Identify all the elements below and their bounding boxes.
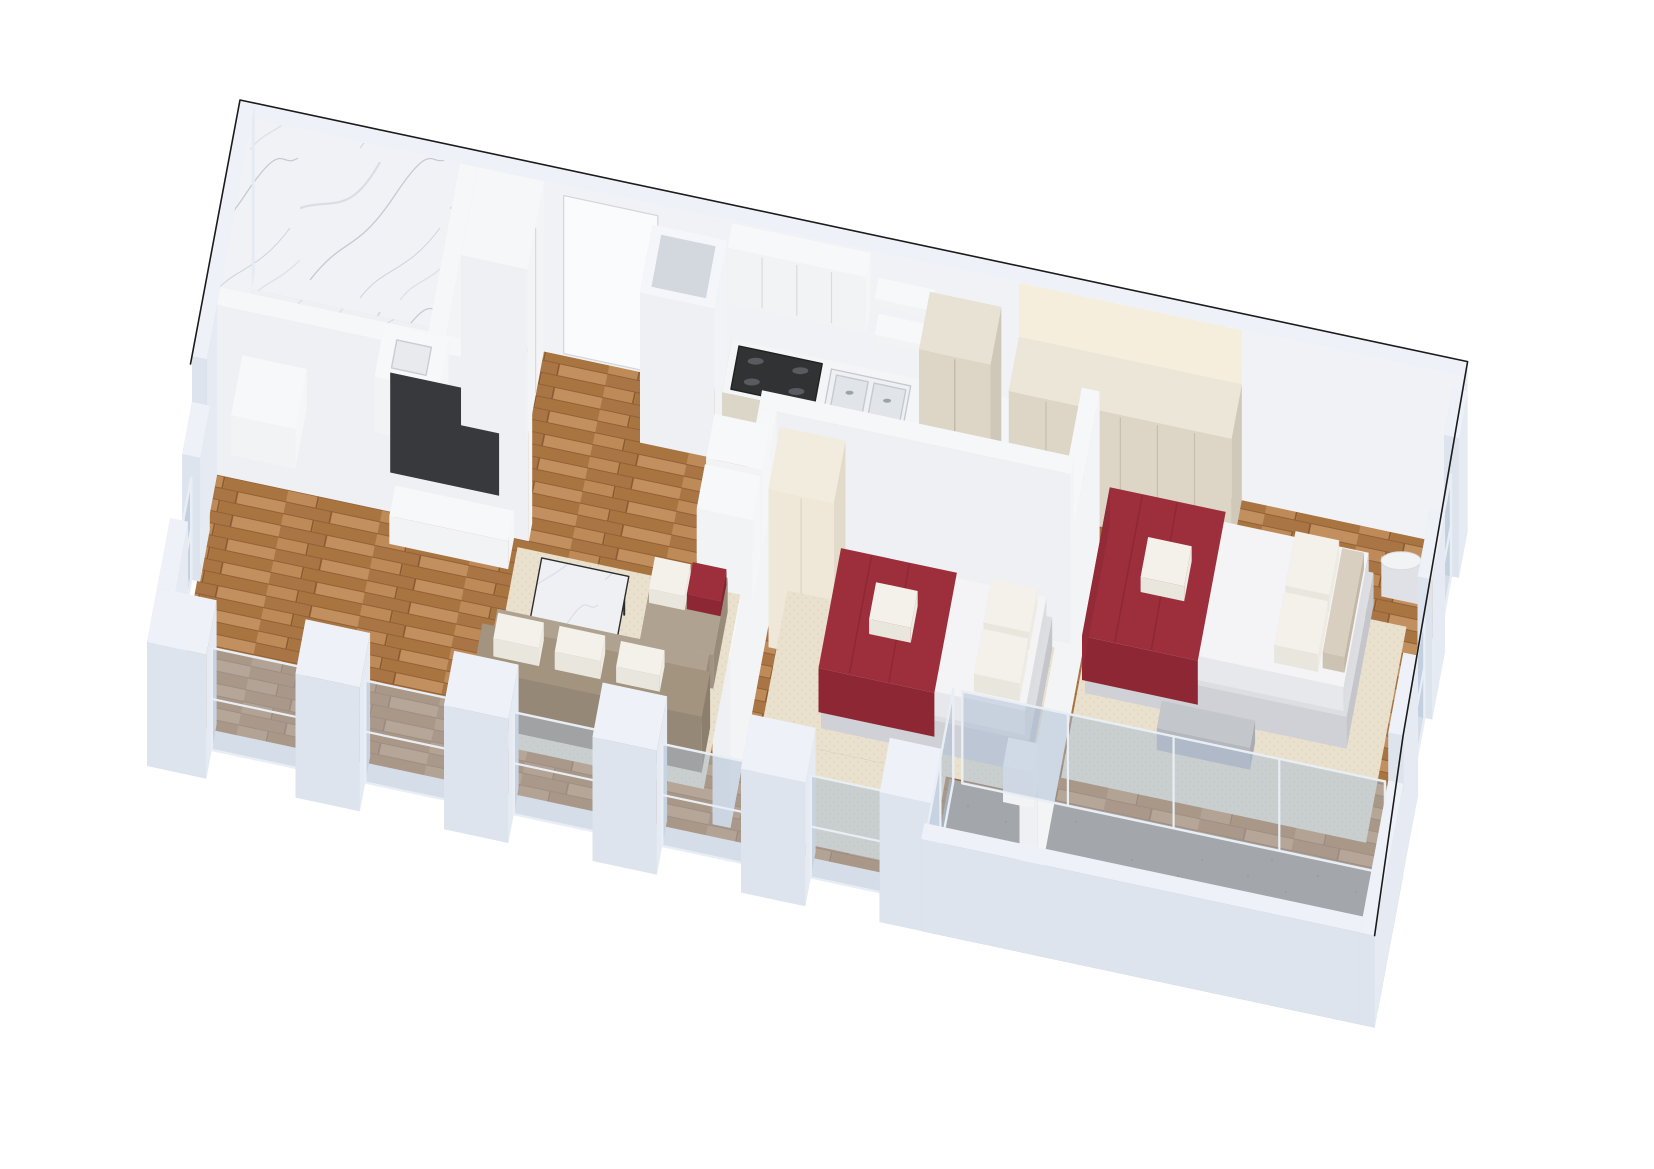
sofa-chaise-pillow bbox=[649, 557, 691, 611]
floorplan-page bbox=[0, 0, 1654, 1169]
facade-pier-d bbox=[593, 683, 668, 875]
facade-pier-b bbox=[296, 619, 371, 811]
facade-window-b bbox=[365, 681, 449, 801]
entry-closet bbox=[461, 167, 544, 439]
master-side-table bbox=[1381, 552, 1421, 605]
floorplan-svg bbox=[0, 0, 1654, 1169]
facade-pier-e bbox=[741, 714, 816, 906]
facade-window-d bbox=[662, 744, 746, 864]
cooktop-burner-c bbox=[744, 379, 760, 386]
facade-window-a bbox=[212, 648, 301, 769]
shower-bench bbox=[231, 355, 307, 469]
facade-window-e bbox=[811, 776, 885, 894]
cooktop-burner-d bbox=[788, 388, 804, 395]
sink-drain-right bbox=[883, 399, 891, 403]
sink-drain-left bbox=[846, 391, 854, 395]
facade-pier-a bbox=[147, 588, 217, 779]
master-pillow-b bbox=[1274, 592, 1328, 672]
master-throw-pillow bbox=[1141, 537, 1192, 601]
cooktop-burner-a bbox=[748, 358, 764, 365]
bedroom2-pillow-b bbox=[974, 629, 1028, 702]
cooktop-burner-b bbox=[792, 367, 808, 374]
facade-window-c bbox=[514, 712, 598, 832]
facade-pier-c bbox=[444, 651, 519, 843]
sofa-red-pillow bbox=[687, 562, 727, 616]
bedroom2-throw-pillow bbox=[869, 582, 918, 643]
